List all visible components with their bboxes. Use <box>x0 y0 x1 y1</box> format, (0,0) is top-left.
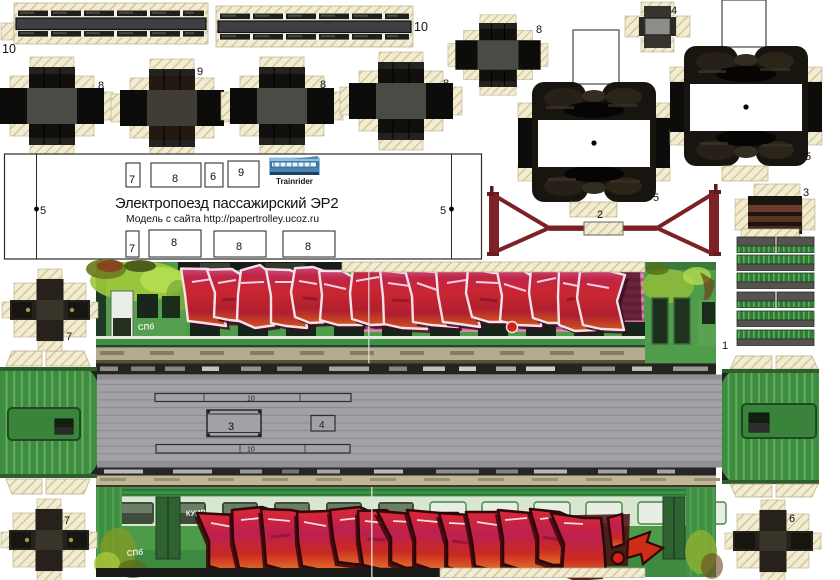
svg-text:8: 8 <box>171 237 177 249</box>
svg-text:4: 4 <box>671 5 677 17</box>
svg-text:8: 8 <box>320 79 326 91</box>
svg-text:10: 10 <box>414 20 428 34</box>
svg-text:6: 6 <box>210 171 216 183</box>
svg-text:4: 4 <box>319 420 325 431</box>
svg-text:10: 10 <box>247 447 255 454</box>
svg-text:8: 8 <box>98 80 104 92</box>
svg-text:Trainrider: Trainrider <box>276 177 313 186</box>
svg-text:Электропоезд пассажирский ЭР2: Электропоезд пассажирский ЭР2 <box>115 196 338 212</box>
svg-text:8: 8 <box>172 173 178 185</box>
svg-text:7: 7 <box>129 174 135 186</box>
svg-text:3: 3 <box>803 187 809 199</box>
svg-text:8: 8 <box>536 24 542 36</box>
svg-text:Модель с сайта http://papertr: Модель с сайта http://papertrolley.ucoz.… <box>126 214 319 225</box>
svg-text:5: 5 <box>40 205 46 217</box>
svg-text:9: 9 <box>238 167 244 179</box>
svg-text:5: 5 <box>805 151 811 163</box>
svg-text:9: 9 <box>197 66 203 78</box>
svg-text:7: 7 <box>66 331 72 343</box>
svg-text:3: 3 <box>228 421 234 433</box>
svg-text:7: 7 <box>64 515 70 527</box>
svg-text:1: 1 <box>722 340 728 352</box>
svg-text:8: 8 <box>443 78 449 90</box>
svg-text:8: 8 <box>305 241 311 253</box>
svg-text:5: 5 <box>653 192 659 204</box>
svg-text:СПб: СПб <box>126 548 143 558</box>
svg-text:8: 8 <box>236 241 242 253</box>
svg-text:2: 2 <box>597 209 603 221</box>
svg-text:10: 10 <box>2 42 16 56</box>
svg-text:СПб: СПб <box>138 322 155 332</box>
svg-text:7: 7 <box>129 243 135 255</box>
svg-text:6: 6 <box>789 513 795 525</box>
svg-text:10: 10 <box>247 396 255 403</box>
svg-text:5: 5 <box>440 205 446 217</box>
